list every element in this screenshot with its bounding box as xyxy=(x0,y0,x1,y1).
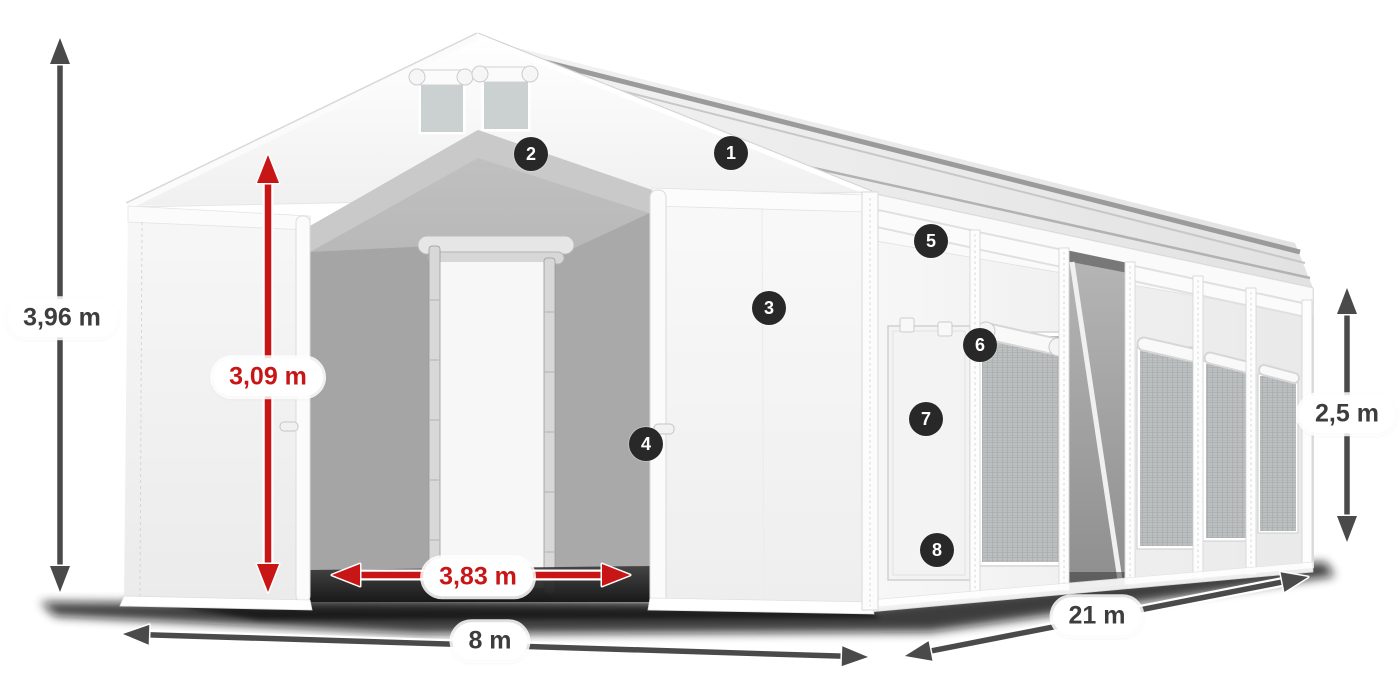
front-opening-interior xyxy=(310,130,652,602)
side-doorway xyxy=(1066,250,1128,590)
side-window-3 xyxy=(1203,358,1253,541)
dimension-clearance-height: 3,09 m xyxy=(213,358,323,396)
front-left-door xyxy=(120,206,312,610)
dimension-total-height: 3,96 m xyxy=(7,299,117,337)
callout-marker-7[interactable]: 7 xyxy=(909,402,943,436)
dimension-wall-height: 2,5 m xyxy=(1299,395,1395,433)
callout-marker-1[interactable]: 1 xyxy=(714,136,748,170)
dimension-passage-width: 3,83 m xyxy=(423,558,533,596)
callout-marker-2[interactable]: 2 xyxy=(514,137,548,171)
callout-marker-5[interactable]: 5 xyxy=(914,224,948,258)
gable-vent-right xyxy=(472,66,538,129)
tent-illustration xyxy=(0,0,1400,700)
dimension-front-width: 8 m xyxy=(452,622,527,660)
dimension-side-length: 21 m xyxy=(1053,597,1142,635)
side-window-4 xyxy=(1258,370,1298,533)
tent-dimension-diagram: 3,96 m 3,09 m 3,83 m 8 m 21 m 2,5 m 1 2 … xyxy=(0,0,1400,700)
side-window-2 xyxy=(1137,344,1199,549)
front-right-door xyxy=(648,188,874,614)
callout-marker-6[interactable]: 6 xyxy=(963,328,997,362)
callout-marker-3[interactable]: 3 xyxy=(752,291,786,325)
side-window-1 xyxy=(977,322,1067,566)
callout-marker-4[interactable]: 4 xyxy=(629,427,663,461)
door-handle-left xyxy=(280,422,298,431)
gable-vent-left xyxy=(409,69,473,132)
callout-marker-8[interactable]: 8 xyxy=(920,533,954,567)
